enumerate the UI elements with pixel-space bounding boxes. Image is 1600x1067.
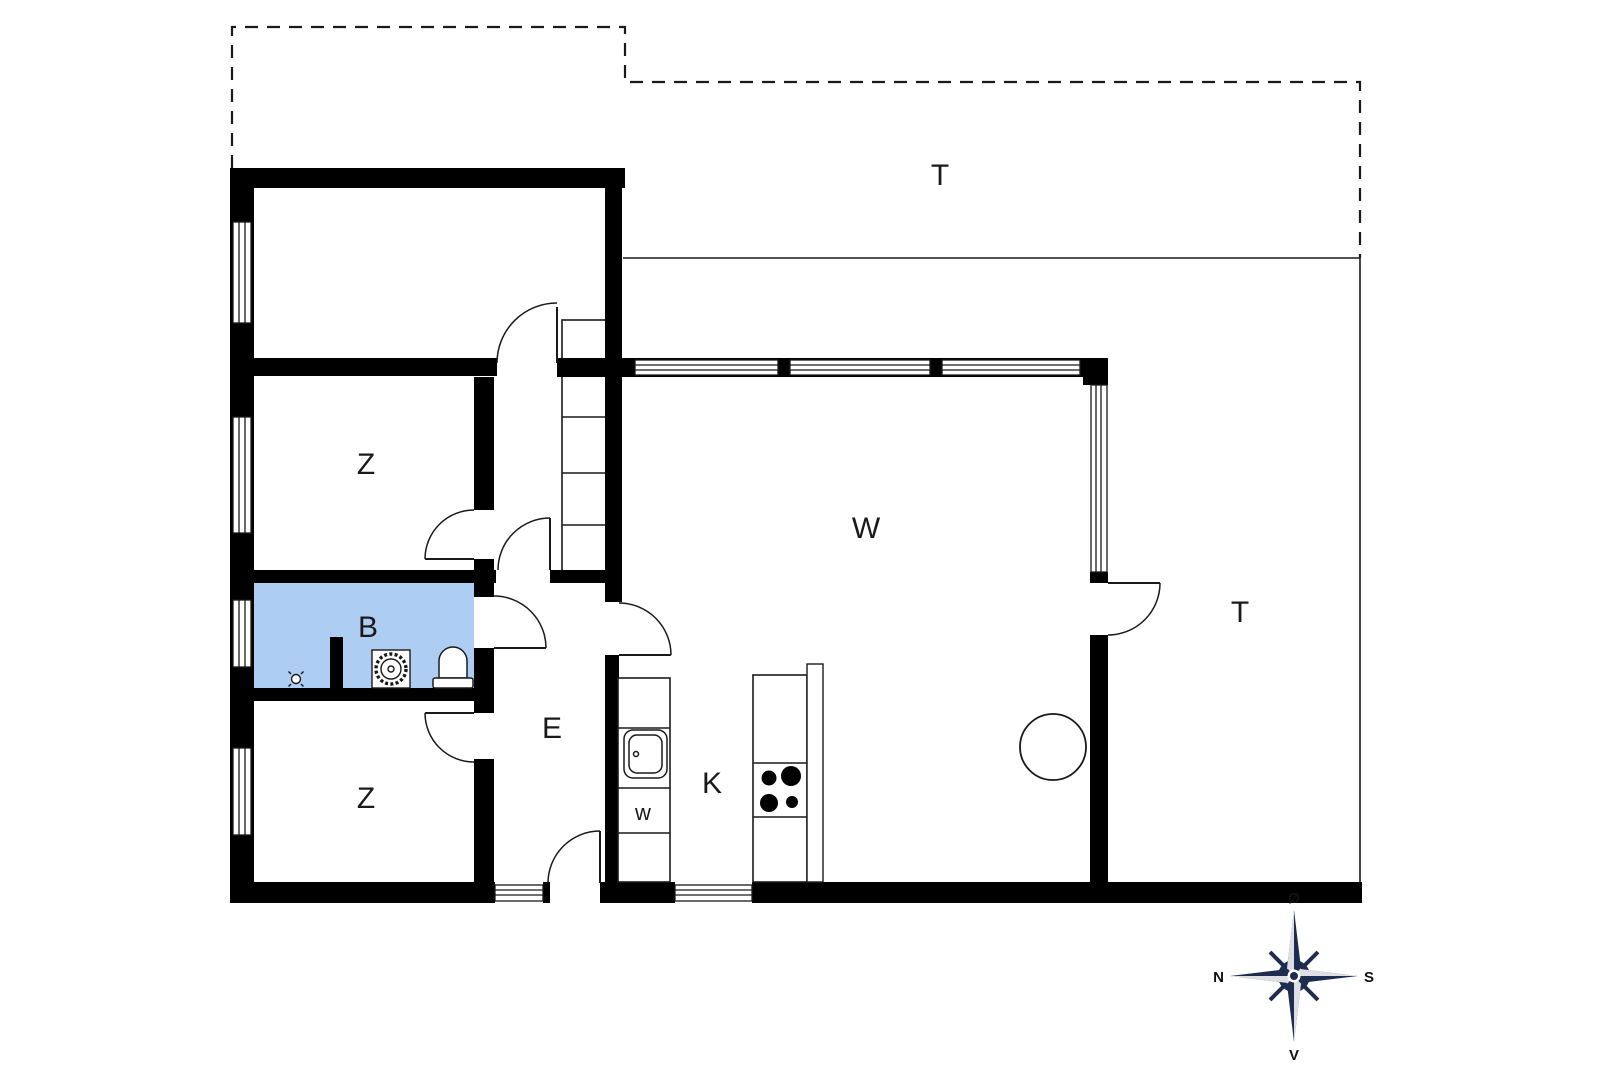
wall-bottom-outer [230,882,495,903]
room-label-bedroom-lower: Z [357,782,375,815]
wall-bedroom-corridor [474,377,494,510]
window-living-top-3 [942,360,1080,375]
stairs [562,320,608,572]
floor-plan-drawing: T T W K E B Z Z w Ø V N S [0,0,1600,1067]
compass-label-east: Ø [1288,890,1300,907]
room-label-terrace-right: T [1231,596,1249,629]
wall-kitchen [605,655,619,885]
wall-bathroom-top [230,570,496,583]
wall-bottom-outer [752,882,1362,903]
room-label-bedroom-upper: Z [357,448,375,481]
wall-bedroomtop-bottom [230,358,497,376]
wall-living-corner [1083,358,1108,385]
compass-label-south: S [1364,969,1374,986]
wall-bottom-outer [543,882,550,903]
floor-plan-page: T T W K E B Z Z w Ø V N S [0,0,1600,1067]
wall-hall-top [550,570,608,583]
wall-right-outer [1090,572,1108,583]
window-bedroom-lower [233,748,251,835]
wall-top-outer [230,168,625,188]
wall-bathroom-right [474,648,494,713]
wall-right-outer [1090,635,1108,885]
window-bedroom-upper [233,417,251,533]
wall-bedroom-entry [474,759,494,885]
room-label-kitchen: K [702,767,722,800]
room-label-terrace-top: T [931,159,949,192]
window-living-top-2 [790,360,930,375]
stairs-outline [562,320,608,572]
room-label-entry: E [542,712,562,745]
kitchen-counter-left [618,678,670,882]
wall-bathroom-bottom [230,688,494,701]
compass-label-west: V [1289,1047,1299,1064]
window-living-top-1 [635,360,778,375]
tall-cabinet [807,664,823,882]
window-bedroom-top [233,222,251,323]
sink-icon [624,730,667,778]
wall-corridor-right [605,168,622,602]
compass-label-north: N [1213,969,1224,986]
wall-bottom-outer [600,882,675,903]
wall-living-top-left [557,358,635,377]
room-label-washer: w [634,800,651,825]
round-table-icon [1020,714,1086,780]
wall-shower-stub [330,637,343,688]
compass-hub-dot [1290,972,1298,980]
shower-icon [372,650,410,688]
window-entry-bottom [495,885,543,901]
window-living-right [1091,385,1107,572]
room-label-living: W [852,512,881,545]
window-kitchen-bottom [675,885,752,901]
room-label-bathroom: B [358,611,378,644]
window-bathroom [233,600,251,667]
